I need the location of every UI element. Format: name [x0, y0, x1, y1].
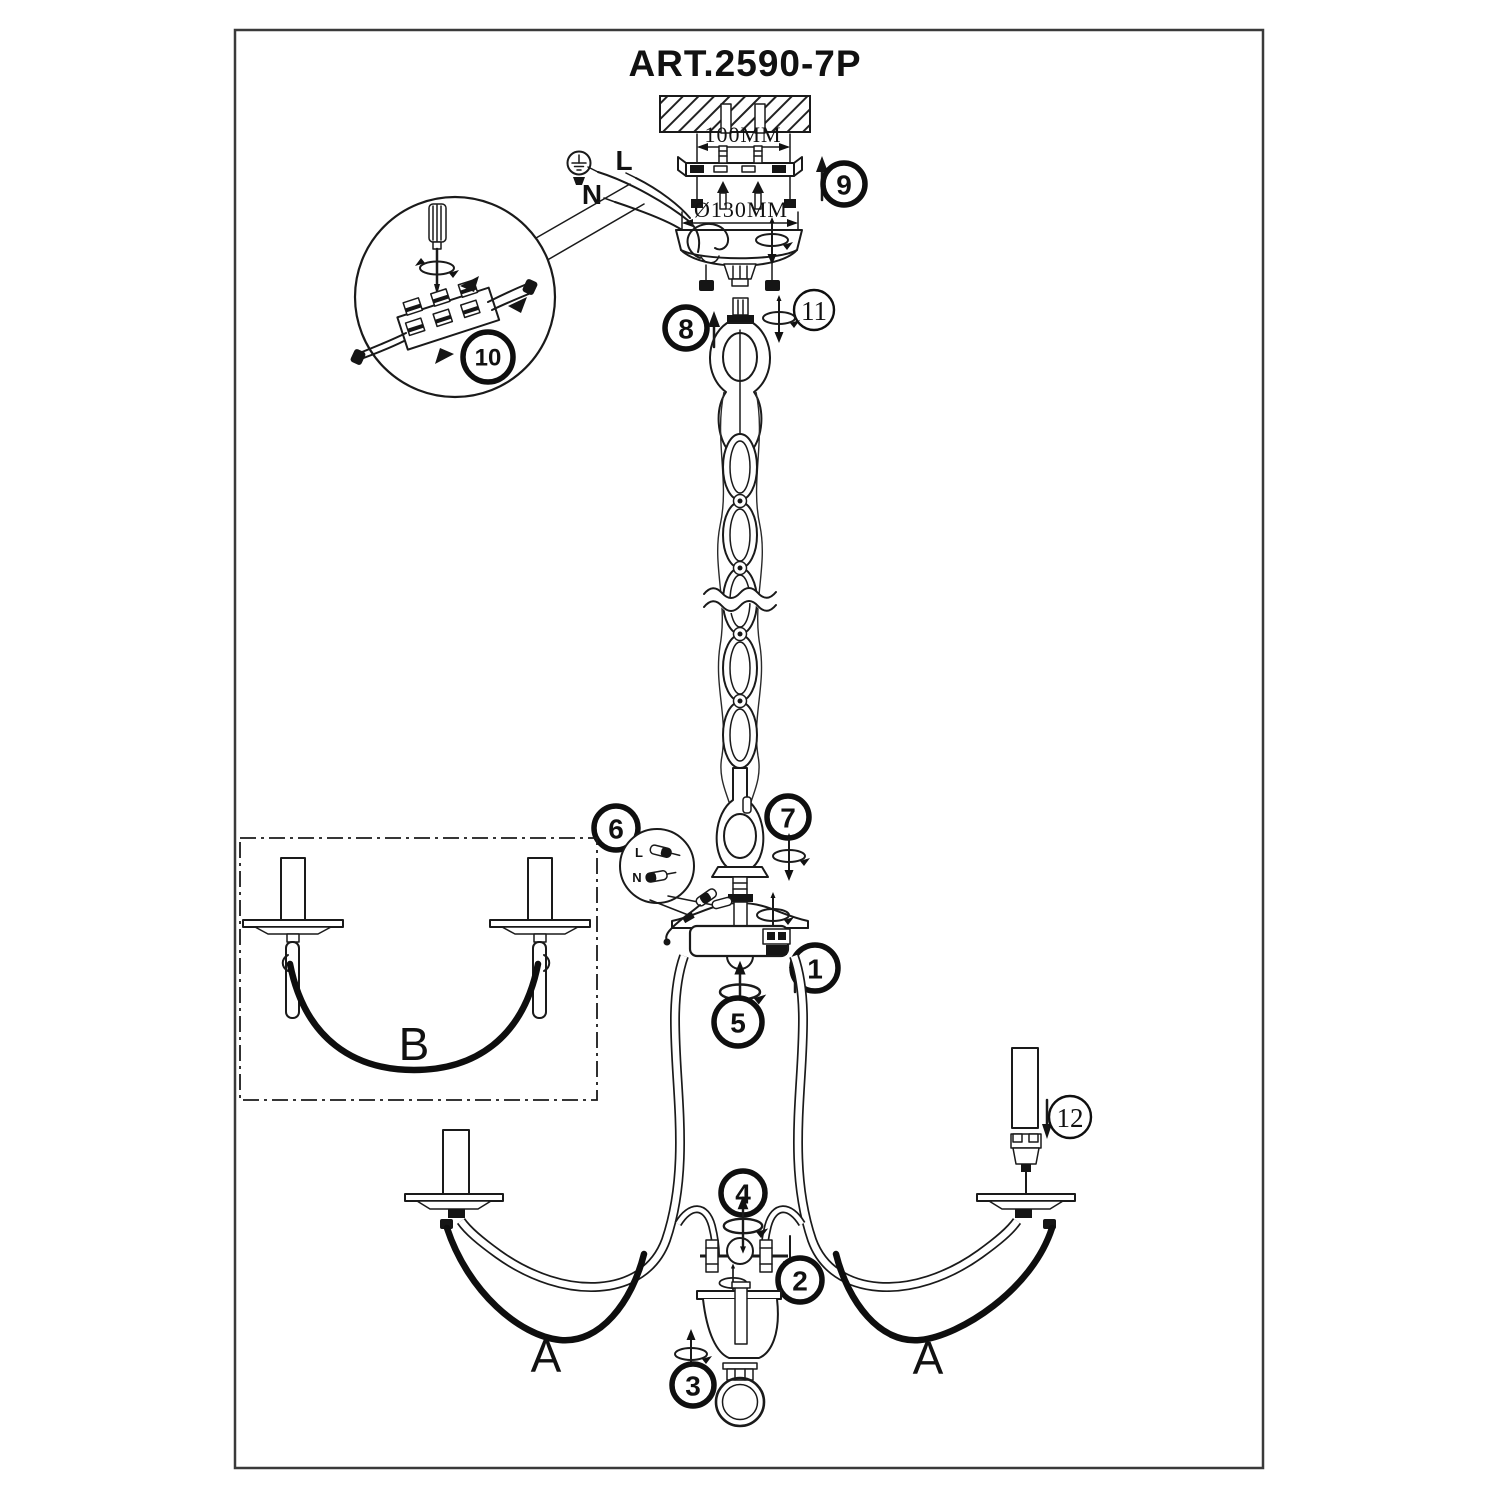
page-title: ART.2590-7P [628, 43, 861, 84]
connector-neutral-label: N [632, 870, 641, 885]
svg-text:11: 11 [801, 296, 827, 326]
stud-left [719, 146, 727, 163]
candle-sleeve-right [1012, 1048, 1038, 1128]
stud-right [754, 146, 762, 163]
cup-center-rod [735, 1286, 747, 1344]
bobeche-left [405, 1194, 503, 1201]
candle-sleeve-left [443, 1130, 469, 1194]
svg-text:9: 9 [836, 170, 852, 201]
callout-8: 8 [665, 307, 707, 349]
center-rod [734, 902, 747, 928]
callout-7: 7 [767, 796, 809, 838]
svg-text:7: 7 [780, 803, 796, 834]
bobeche-right [977, 1194, 1075, 1201]
callout-12: 12 [1049, 1096, 1091, 1138]
mount-width-label: 100MM [704, 122, 781, 147]
nipple-right [765, 280, 780, 291]
callout-2: 2 [778, 1258, 822, 1302]
canopy-diameter-label: Ø130MM [694, 197, 788, 222]
svg-text:8: 8 [678, 314, 694, 345]
swag-right-label: A [913, 1332, 944, 1384]
svg-text:1: 1 [807, 954, 823, 985]
nipple-left [699, 280, 714, 291]
assembly-instruction-page: ART.2590-7P 100MM [0, 0, 1500, 1500]
wire-live-label: L [615, 145, 632, 176]
svg-text:5: 5 [730, 1008, 746, 1039]
threaded-collar [766, 945, 787, 955]
callout-9: 9 [823, 163, 865, 205]
inset-swag-label: B [399, 1018, 430, 1070]
svg-text:2: 2 [792, 1266, 808, 1297]
assembly-diagram: ART.2590-7P 100MM [0, 0, 1500, 1500]
svg-text:6: 6 [608, 814, 624, 845]
swag-left-label: A [531, 1330, 562, 1382]
svg-text:3: 3 [685, 1371, 701, 1402]
svg-text:10: 10 [475, 345, 502, 372]
callout-11: 11 [794, 290, 834, 330]
callout-3: 3 [672, 1364, 714, 1406]
callout-5: 5 [714, 998, 762, 1046]
svg-text:12: 12 [1057, 1103, 1084, 1133]
connector-live-label: L [635, 845, 643, 860]
callout-10: 10 [463, 332, 513, 382]
